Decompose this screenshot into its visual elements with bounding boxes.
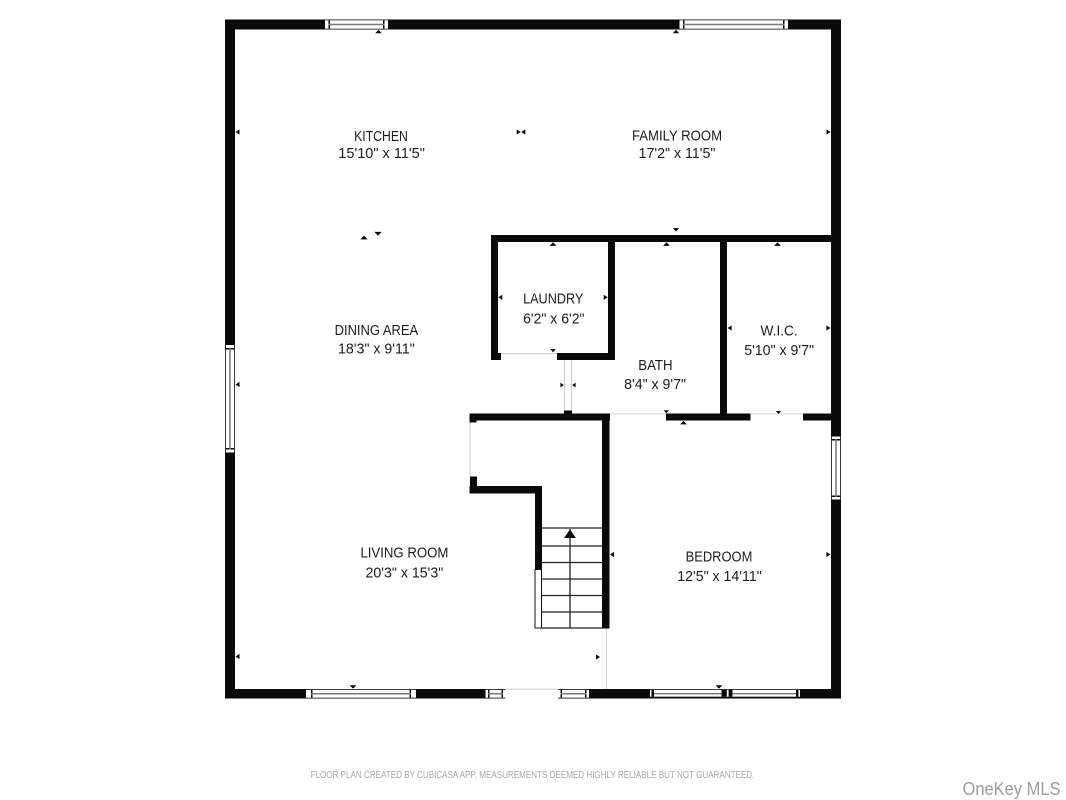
svg-text:LIVING ROOM: LIVING ROOM (360, 545, 448, 561)
svg-text:DINING AREA: DINING AREA (335, 323, 419, 339)
svg-text:12'5" x 14'11": 12'5" x 14'11" (677, 569, 762, 585)
svg-text:BATH: BATH (638, 358, 672, 374)
svg-text:BEDROOM: BEDROOM (686, 550, 753, 566)
svg-text:FAMILY ROOM: FAMILY ROOM (632, 128, 722, 144)
svg-text:8'4" x 9'7": 8'4" x 9'7" (624, 377, 686, 393)
svg-text:17'2" x 11'5": 17'2" x 11'5" (639, 146, 716, 162)
svg-text:KITCHEN: KITCHEN (354, 129, 408, 145)
svg-text:15'10" x 11'5": 15'10" x 11'5" (338, 146, 425, 162)
svg-text:20'3" x 15'3": 20'3" x 15'3" (366, 565, 444, 581)
svg-text:5'10" x 9'7": 5'10" x 9'7" (744, 343, 814, 359)
svg-text:W.I.C.: W.I.C. (761, 323, 798, 339)
svg-text:LAUNDRY: LAUNDRY (523, 292, 583, 308)
svg-text:6'2" x 6'2": 6'2" x 6'2" (523, 311, 584, 327)
svg-text:FLOOR PLAN CREATED BY CUBICASA: FLOOR PLAN CREATED BY CUBICASA APP. MEAS… (311, 770, 755, 781)
svg-text:18'3" x 9'11": 18'3" x 9'11" (338, 342, 415, 358)
svg-text:OneKey MLS: OneKey MLS (963, 779, 1061, 799)
